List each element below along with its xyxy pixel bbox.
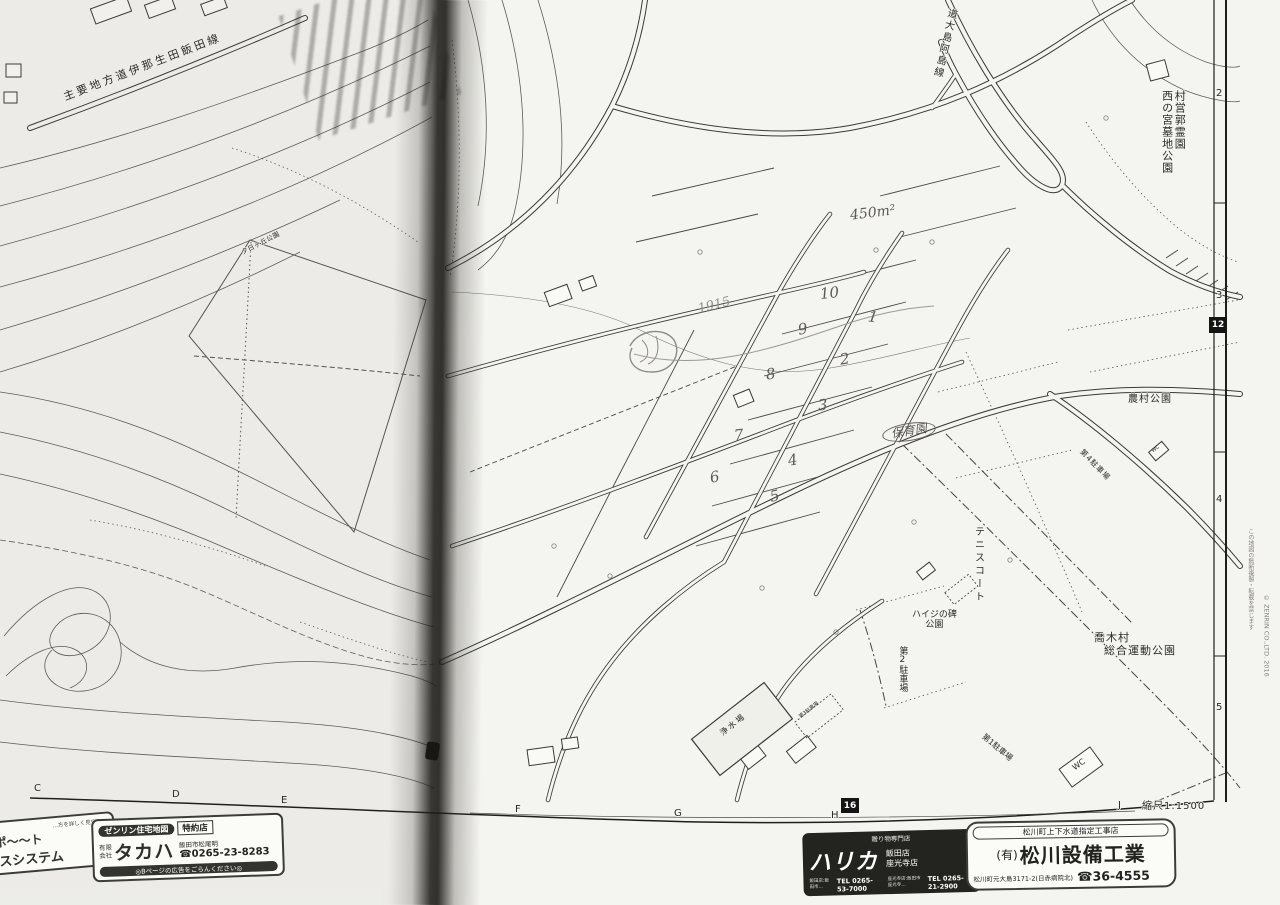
- parking2-label: 第2駐車場: [897, 646, 907, 716]
- ad-takaha: ゼンリン住宅地図 特約店 有限会社 タカハ 飯田市松尾明 ☎0265-23-82…: [91, 813, 285, 883]
- nouson-park-label: 農村公園: [1128, 394, 1172, 406]
- lot-number-7: 7: [733, 427, 744, 445]
- heidi-line1: ハイジの碑: [912, 610, 957, 620]
- grid-letter-J: J: [1118, 800, 1121, 812]
- utility-pole-symbols: [552, 116, 1108, 634]
- grid-number-3: 3: [1216, 290, 1222, 302]
- heidi-line2: 公園: [912, 620, 957, 630]
- lot-number-2: 2: [839, 350, 851, 368]
- cemetery-labels: 村営郭霊園 西の宮墓地公園: [1160, 90, 1185, 240]
- sports-park-label: 喬木村 総合運動公園: [1094, 632, 1176, 657]
- harika-address1: 飯田店:飯田市…: [809, 878, 833, 895]
- village-name: 喬木村: [1094, 632, 1176, 645]
- takaha-phone: ☎0265-23-8283: [179, 846, 270, 860]
- scale-label: 縮尺1:1500: [1142, 801, 1205, 813]
- ad-harika: 贈り物専門店 ハリカ 飯田店 座光寺店 飯田店:飯田市… TEL 0265-53…: [802, 829, 981, 897]
- copyright-jp: この地図の無断複製・転載を禁じます: [1246, 528, 1253, 798]
- takaha-zenrin-badge: ゼンリン住宅地図: [98, 823, 174, 837]
- lot-number-3: 3: [817, 397, 828, 415]
- takaha-company-name: タカハ: [114, 836, 175, 865]
- grid-letter-G: G: [674, 808, 682, 820]
- cemetery-park-label: 西の宮墓地公園: [1160, 90, 1173, 240]
- scan-ink-blob: [425, 741, 440, 761]
- grid-letter-E: E: [281, 795, 287, 807]
- matsukawa-phone: ☎36-4555: [1077, 868, 1150, 884]
- lot-number-10: 10: [819, 284, 840, 303]
- page-badge-16: 16: [841, 798, 859, 813]
- sports-park-name: 総合運動公園: [1104, 645, 1176, 658]
- scanned-map-page: 主要地方道伊那生田飯田線 道大島阿島線 村営郭霊園 西の宮墓地公園 夕日ヶ丘公園…: [0, 0, 1280, 905]
- grid-number-5: 5: [1216, 702, 1222, 714]
- harika-brand: ハリカ: [809, 843, 879, 877]
- cemetery-name-label: 村営郭霊園: [1173, 90, 1186, 240]
- harika-address2: 座光寺店:飯田市座光寺…: [887, 875, 924, 892]
- page-badge-12: 12: [1209, 317, 1227, 333]
- matsukawa-company-name: 松川設備工業: [1019, 838, 1145, 869]
- harika-phone1: TEL 0265-53-7000: [837, 876, 884, 893]
- grid-number-4: 4: [1216, 494, 1222, 506]
- matsukawa-address: 松川町元大島3171-2(日赤病院北): [973, 871, 1073, 883]
- handwritten-scribble: [630, 331, 677, 372]
- grid-number-2: 2: [1216, 88, 1222, 100]
- harika-store2: 座光寺店: [886, 858, 918, 868]
- tennis-court-label: テニスコート: [972, 526, 984, 631]
- takaha-company-prefix: 有限会社: [99, 845, 114, 860]
- heidi-monument-park-label: ハイジの碑 公園: [912, 610, 957, 631]
- takaha-tokuyakuten-badge: 特約店: [177, 820, 213, 835]
- copyright-en: © ZENRIN CO.,LTD. 2016: [1262, 594, 1269, 804]
- ad-matsukawa: 松川町上下水道指定工事店 (有) 松川設備工業 松川町元大島3171-2(日赤病…: [965, 818, 1176, 891]
- grid-letter-F: F: [515, 804, 521, 816]
- grid-letter-C: C: [34, 783, 41, 795]
- matsukawa-company-prefix: (有): [996, 846, 1018, 863]
- grid-letter-D: D: [172, 789, 180, 801]
- grid-letter-H: H: [831, 810, 839, 822]
